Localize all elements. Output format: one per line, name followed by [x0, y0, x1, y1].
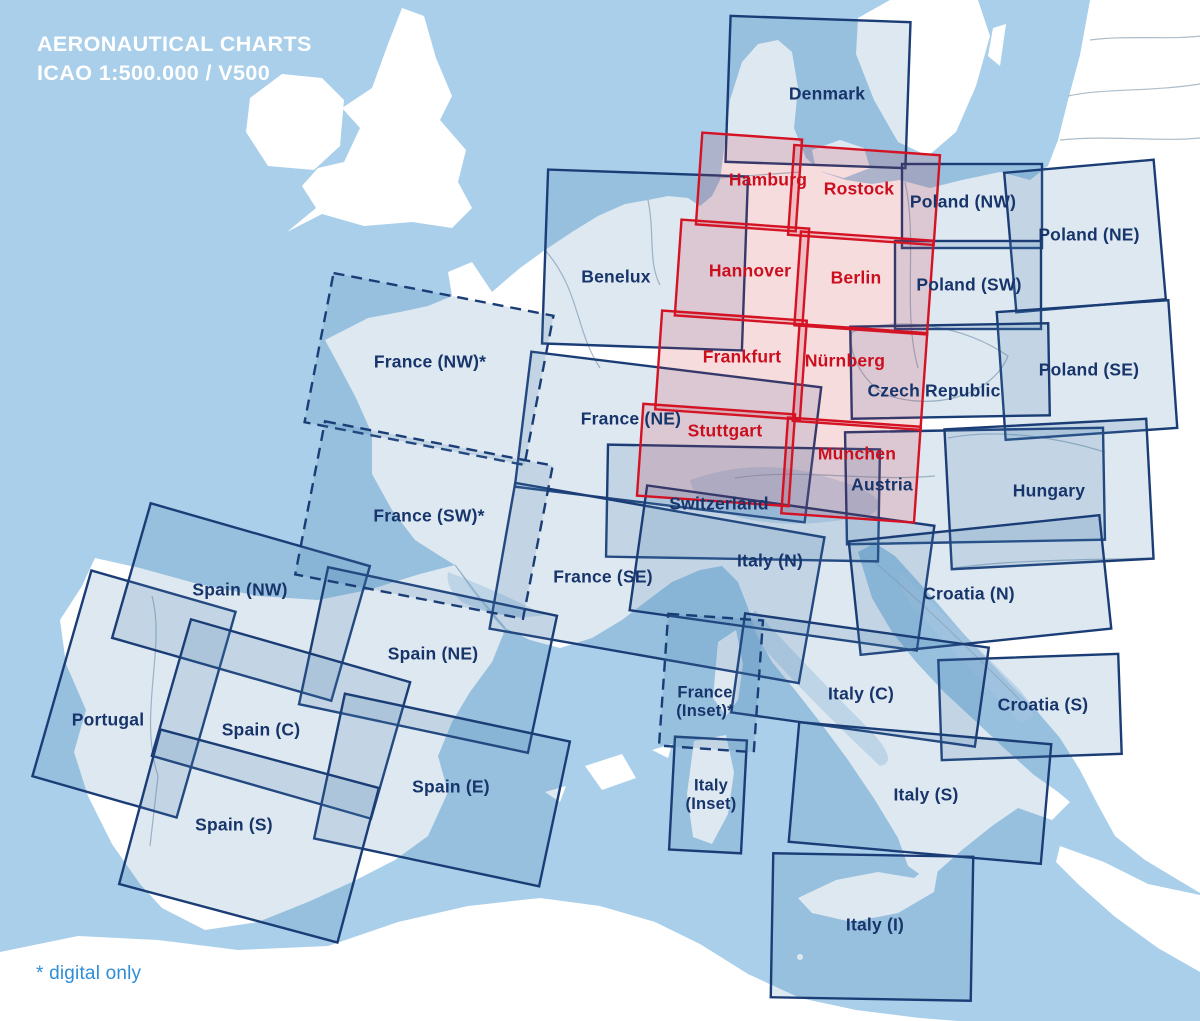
- chart-label-france-sw: France (SW)*: [373, 506, 484, 526]
- chart-label-hungary: Hungary: [1013, 481, 1085, 501]
- digital-only-note: * digital only: [36, 963, 141, 985]
- chart-label-france-nw: France (NW)*: [374, 352, 486, 372]
- chart-label-italy-i: Italy (I): [846, 915, 904, 935]
- chart-label-france-se: France (SE): [553, 567, 652, 587]
- chart-label-hannover: Hannover: [709, 261, 791, 281]
- chart-label-poland-ne: Poland (NE): [1038, 225, 1139, 245]
- chart-box-nuernberg: [793, 324, 927, 430]
- chart-label-hamburg: Hamburg: [729, 170, 807, 190]
- chart-label-muenchen: München: [818, 444, 896, 464]
- chart-label-poland-nw: Poland (NW): [910, 192, 1016, 212]
- chart-label-berlin: Berlin: [831, 268, 882, 288]
- chart-label-france-inset-line2: (Inset)*: [676, 702, 734, 720]
- chart-label-czech-republic: Czech Republic: [867, 381, 1000, 401]
- chart-box-muenchen: [781, 417, 920, 522]
- chart-label-austria: Austria: [851, 475, 913, 495]
- chart-label-rostock: Rostock: [824, 179, 895, 199]
- chart-label-spain-c: Spain (C): [222, 720, 301, 740]
- chart-label-italy-s: Italy (S): [893, 785, 958, 805]
- chart-label-italy-n: Italy (N): [737, 551, 803, 571]
- chart-label-italy-inset-line2: (Inset): [686, 795, 737, 813]
- chart-label-nuernberg: Nürnberg: [805, 351, 885, 371]
- chart-area-nuernberg: [793, 324, 927, 430]
- europe-map: DenmarkPoland (NW)Poland (NE)Poland (SW)…: [0, 0, 1200, 1021]
- map-title: AERONAUTICAL CHARTS ICAO 1:500.000 / V50…: [37, 30, 312, 88]
- chart-label-frankfurt: Frankfurt: [703, 347, 782, 367]
- chart-label-spain-s: Spain (S): [195, 815, 273, 835]
- chart-label-france-ne: France (NE): [581, 409, 681, 429]
- chart-label-switzerland: Switzerland: [669, 494, 768, 514]
- chart-label-poland-sw: Poland (SW): [916, 275, 1021, 295]
- map-title-line1: AERONAUTICAL CHARTS: [37, 30, 312, 59]
- chart-label-france-inset: France: [677, 683, 732, 701]
- chart-label-italy-c: Italy (C): [828, 684, 894, 704]
- chart-label-italy-inset: Italy: [694, 776, 729, 794]
- chart-label-poland-se: Poland (SE): [1039, 360, 1139, 380]
- chart-label-portugal: Portugal: [72, 710, 145, 730]
- chart-area-muenchen: [781, 417, 920, 522]
- chart-label-benelux: Benelux: [581, 267, 651, 287]
- chart-label-croatia-n: Croatia (N): [923, 584, 1015, 604]
- chart-label-croatia-s: Croatia (S): [998, 695, 1089, 715]
- chart-label-stuttgart: Stuttgart: [688, 421, 763, 441]
- chart-label-spain-nw: Spain (NW): [192, 580, 287, 600]
- chart-label-spain-e: Spain (E): [412, 777, 490, 797]
- map-title-line2: ICAO 1:500.000 / V500: [37, 59, 312, 88]
- chart-label-spain-ne: Spain (NE): [388, 644, 478, 664]
- chart-label-denmark: Denmark: [789, 84, 865, 104]
